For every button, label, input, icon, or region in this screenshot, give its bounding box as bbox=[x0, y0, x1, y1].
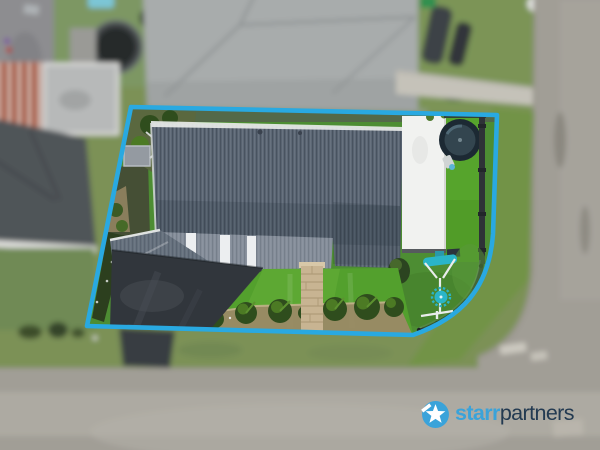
subject-property bbox=[87, 104, 505, 335]
neighbor-grey-flat-roof bbox=[44, 64, 118, 134]
logo-text-starr: starr bbox=[455, 401, 500, 425]
garden-shed bbox=[124, 146, 150, 166]
shrub bbox=[71, 328, 85, 338]
neighbor-big-roof-top bbox=[143, 0, 437, 112]
lawn bbox=[0, 248, 94, 336]
driveway-crossing bbox=[119, 328, 175, 368]
shrub bbox=[48, 322, 68, 338]
logo-wordmark: starrpartners bbox=[455, 403, 574, 425]
paver-path bbox=[299, 262, 325, 332]
bin-red bbox=[6, 47, 12, 53]
roof-vent bbox=[298, 131, 302, 135]
aerial-scene bbox=[0, 0, 600, 450]
white-roof-panel bbox=[247, 236, 256, 270]
logo-text-partners: partners bbox=[500, 401, 574, 425]
agency-logo: starrpartners bbox=[421, 398, 574, 430]
bin-purple bbox=[4, 38, 10, 44]
aerial-photo: starrpartners bbox=[0, 0, 600, 450]
shrub bbox=[18, 325, 42, 339]
neighbor-roof-left bbox=[0, 118, 96, 336]
small-pool bbox=[88, 0, 114, 8]
starr-partners-star-icon bbox=[421, 400, 450, 429]
roof-vent bbox=[258, 130, 263, 135]
neighbor-terracotta-roof bbox=[0, 62, 42, 128]
green-box bbox=[420, 0, 436, 8]
